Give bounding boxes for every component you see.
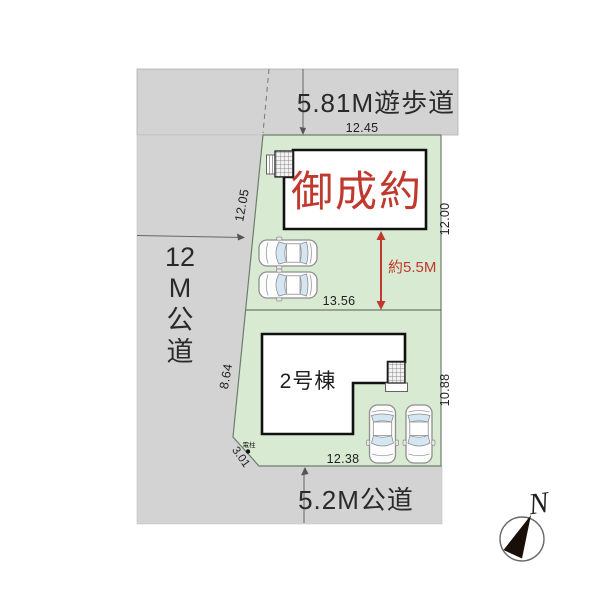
site-plan-svg: 御成約 2号棟 約5.5M 12.45 12.05 12.00 13.56 8.… (0, 0, 600, 600)
building-2-balcony-hatch (388, 362, 405, 383)
dim-east-upper: 12.00 (438, 203, 452, 236)
site-plan-canvas: 御成約 2号棟 約5.5M 12.45 12.05 12.00 13.56 8.… (0, 0, 600, 600)
dim-walkway-frontage: 12.45 (346, 121, 379, 135)
building-2-ledge (386, 383, 408, 392)
south-road-label: 5.2M公道 (298, 485, 414, 515)
west-road-label-4: 道 (167, 337, 194, 367)
dim-middle-width: 13.56 (323, 294, 356, 308)
building-1-status-label: 御成約 (291, 168, 423, 215)
dim-east-lower: 10.88 (438, 374, 452, 407)
compass: N (500, 486, 553, 561)
gap-label: 約5.5M (388, 259, 436, 276)
building-1-ledge (267, 155, 276, 174)
utility-pole-label: 電柱 (243, 440, 257, 449)
utility-pole-dot (246, 449, 250, 453)
dim-south-frontage: 12.38 (327, 452, 360, 466)
car-1 (259, 237, 317, 269)
car-4 (403, 405, 435, 463)
car-2 (259, 269, 317, 301)
west-road-label-3: 公 (167, 305, 194, 335)
building-1: 御成約 (267, 150, 427, 229)
walkway-label: 5.81M遊歩道 (297, 88, 455, 118)
west-road-label-1: 12 (165, 242, 195, 272)
compass-north-label: N (525, 486, 552, 522)
building-2-name-label: 2号棟 (280, 370, 337, 393)
west-road-label-2: M (169, 273, 192, 303)
car-3 (367, 405, 399, 463)
